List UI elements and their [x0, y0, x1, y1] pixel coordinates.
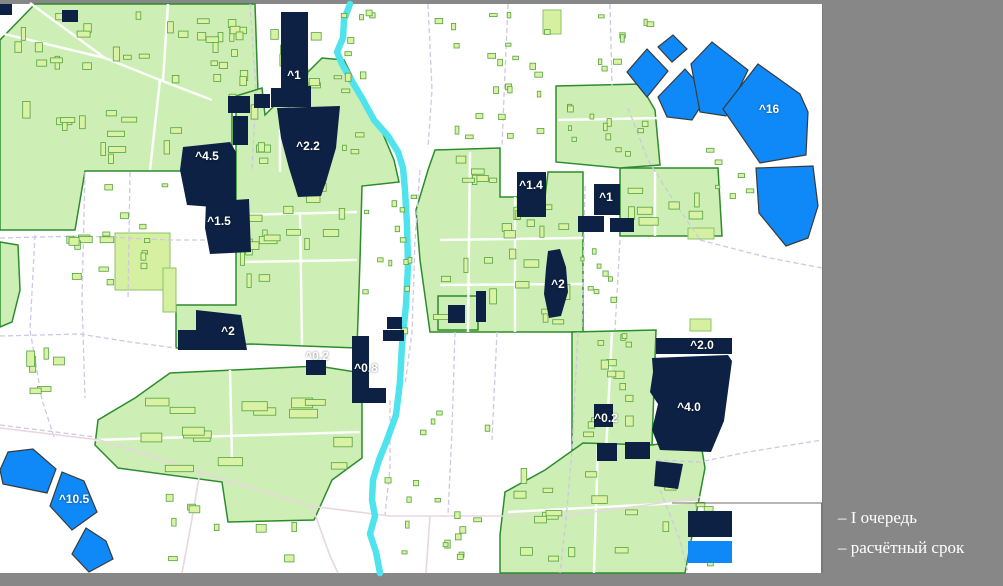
building-footprint	[588, 287, 593, 291]
building-footprint	[602, 66, 607, 71]
building-footprint	[285, 555, 294, 562]
building-footprint	[613, 59, 621, 64]
building-footprint	[527, 220, 535, 227]
building-footprint	[290, 409, 318, 418]
building-footprint	[218, 458, 242, 466]
building-footprint	[264, 235, 280, 241]
building-footprint	[435, 498, 441, 502]
first-phase-area	[0, 4, 12, 15]
building-footprint	[171, 128, 182, 134]
building-footprint	[258, 143, 264, 152]
building-footprint	[309, 79, 319, 86]
building-footprint	[232, 50, 238, 57]
park-area	[163, 268, 176, 312]
building-footprint	[454, 44, 459, 49]
map-capacity-label: ^0.2	[305, 349, 329, 363]
legend-swatch-first-phase	[688, 511, 732, 537]
building-footprint	[639, 218, 658, 226]
building-footprint	[460, 527, 466, 534]
building-footprint	[360, 15, 364, 20]
building-footprint	[182, 427, 204, 435]
building-footprint	[23, 101, 30, 118]
first-phase-area	[476, 291, 486, 322]
building-footprint	[608, 371, 616, 377]
building-footprint	[53, 357, 64, 365]
building-footprint	[474, 518, 482, 522]
building-footprint	[452, 23, 456, 29]
building-footprint	[345, 73, 351, 81]
building-footprint	[456, 156, 466, 163]
building-footprint	[139, 54, 149, 58]
map-document: ^1^2.2^4.5^1.5^1.4^1^2^2^0.2^0.8^2.0^4.0…	[0, 0, 1003, 586]
building-footprint	[214, 524, 219, 530]
building-footprint	[431, 419, 435, 424]
first-phase-area	[254, 94, 270, 108]
park-area	[688, 228, 714, 239]
building-footprint	[594, 290, 599, 294]
building-footprint	[343, 145, 347, 150]
map-capacity-label: ^1.4	[519, 178, 543, 192]
building-footprint	[514, 491, 526, 498]
building-footprint	[637, 207, 652, 214]
first-phase-area	[654, 461, 683, 489]
building-footprint	[103, 232, 110, 236]
building-footprint	[626, 395, 633, 401]
building-footprint	[611, 297, 617, 302]
building-footprint	[569, 547, 575, 556]
building-footprint	[51, 58, 63, 63]
building-footprint	[421, 430, 427, 435]
building-footprint	[400, 238, 406, 243]
building-footprint	[489, 178, 497, 182]
building-footprint	[366, 10, 372, 16]
building-footprint	[214, 74, 221, 81]
building-footprint	[535, 516, 547, 523]
building-footprint	[608, 277, 612, 281]
building-footprint	[506, 43, 511, 46]
building-footprint	[211, 61, 217, 66]
building-footprint	[121, 213, 129, 219]
building-footprint	[141, 433, 162, 442]
building-footprint	[107, 279, 113, 285]
map-capacity-label: ^1.5	[207, 214, 231, 228]
building-footprint	[626, 416, 634, 426]
building-footprint	[669, 202, 679, 209]
building-footprint	[179, 31, 188, 37]
building-footprint	[414, 480, 419, 485]
building-footprint	[99, 267, 108, 271]
building-footprint	[80, 116, 86, 129]
building-footprint	[546, 511, 562, 516]
building-footprint	[109, 154, 114, 163]
building-footprint	[598, 59, 601, 65]
building-footprint	[306, 196, 320, 203]
first-phase-area	[383, 330, 404, 341]
building-footprint	[599, 15, 605, 18]
building-footprint	[476, 114, 483, 119]
building-footprint	[628, 188, 643, 193]
building-footprint	[524, 260, 539, 268]
building-footprint	[540, 226, 544, 237]
building-footprint	[305, 238, 310, 249]
building-footprint	[606, 134, 611, 140]
building-footprint	[141, 253, 146, 260]
building-footprint	[647, 22, 654, 27]
building-footprint	[730, 194, 735, 199]
building-footprint	[553, 320, 564, 324]
building-footprint	[292, 522, 297, 531]
building-footprint	[455, 126, 459, 134]
first-phase-area	[228, 96, 250, 113]
building-footprint	[516, 282, 529, 289]
building-footprint	[219, 62, 227, 68]
building-footprint	[738, 174, 744, 178]
building-footprint	[622, 334, 627, 339]
map-capacity-label: ^10.5	[59, 492, 90, 506]
building-footprint	[363, 290, 368, 294]
building-footprint	[521, 547, 533, 555]
building-footprint	[146, 398, 170, 406]
building-footprint	[389, 260, 392, 266]
building-footprint	[592, 496, 608, 504]
building-footprint	[435, 18, 443, 23]
map-capacity-label: ^0.2	[594, 411, 618, 425]
first-phase-area	[578, 216, 604, 232]
building-footprint	[113, 47, 119, 61]
building-footprint	[456, 534, 462, 540]
park-area	[115, 233, 170, 290]
building-footprint	[508, 86, 512, 93]
building-footprint	[240, 77, 247, 86]
building-footprint	[545, 30, 551, 35]
building-footprint	[69, 238, 79, 246]
building-footprint	[334, 76, 342, 79]
building-footprint	[568, 106, 574, 112]
map-capacity-label: ^2	[551, 277, 565, 291]
building-footprint	[625, 152, 630, 157]
building-footprint	[406, 521, 410, 528]
building-footprint	[124, 55, 132, 59]
building-footprint	[331, 463, 347, 469]
building-footprint	[715, 160, 722, 165]
building-footprint	[590, 114, 594, 119]
building-footprint	[402, 551, 407, 554]
building-footprint	[400, 208, 405, 212]
map-capacity-label: ^1	[287, 68, 301, 82]
building-footprint	[663, 522, 669, 532]
map-capacity-label: ^2.0	[690, 338, 714, 352]
building-footprint	[348, 38, 354, 44]
map-capacity-label: ^4.5	[195, 149, 219, 163]
building-footprint	[100, 237, 114, 243]
building-footprint	[694, 193, 699, 207]
building-footprint	[499, 114, 506, 119]
building-footprint	[271, 30, 279, 40]
first-phase-area	[597, 443, 617, 461]
building-footprint	[584, 432, 594, 437]
building-footprint	[351, 149, 359, 153]
map-capacity-label: ^2	[221, 324, 235, 338]
building-footprint	[504, 231, 515, 238]
first-phase-area	[610, 218, 634, 232]
building-footprint	[166, 494, 173, 501]
building-footprint	[164, 141, 170, 154]
building-footprint	[471, 169, 484, 174]
building-footprint	[168, 22, 174, 33]
building-footprint	[537, 128, 544, 133]
map-capacity-label: ^1	[599, 190, 613, 204]
building-footprint	[341, 14, 347, 18]
building-footprint	[411, 195, 416, 199]
building-footprint	[345, 52, 352, 56]
building-footprint	[83, 63, 92, 70]
legend-item-future-phase: – расчётный срок	[838, 538, 964, 558]
building-footprint	[242, 402, 267, 411]
map-capacity-label: ^0.8	[354, 361, 378, 375]
building-footprint	[378, 258, 384, 262]
first-phase-area	[233, 116, 248, 145]
building-footprint	[620, 384, 626, 390]
building-footprint	[172, 75, 179, 83]
building-footprint	[35, 43, 42, 52]
building-footprint	[240, 251, 244, 265]
legend-item-first-phase: – I очередь	[838, 508, 917, 528]
building-footprint	[638, 129, 644, 133]
building-footprint	[334, 437, 352, 447]
building-footprint	[105, 185, 113, 190]
building-footprint	[287, 229, 301, 235]
building-footprint	[198, 33, 206, 40]
legend-swatch-future-phase	[688, 541, 732, 563]
first-phase-area	[625, 442, 650, 459]
building-footprint	[360, 72, 366, 79]
building-footprint	[405, 286, 410, 291]
building-footprint	[189, 506, 200, 513]
building-footprint	[498, 59, 503, 66]
building-footprint	[535, 72, 543, 77]
building-footprint	[607, 119, 611, 127]
building-footprint	[107, 131, 124, 136]
first-phase-area	[448, 305, 465, 323]
building-footprint	[484, 258, 492, 264]
building-footprint	[256, 524, 266, 532]
building-footprint	[27, 351, 35, 366]
first-phase-area	[62, 10, 78, 22]
map-capacity-label: ^16	[759, 102, 780, 116]
building-footprint	[463, 178, 475, 182]
building-footprint	[509, 249, 515, 259]
building-footprint	[704, 507, 713, 512]
first-phase-area	[387, 317, 402, 329]
building-footprint	[543, 488, 553, 492]
building-footprint	[30, 388, 41, 394]
building-footprint	[488, 53, 496, 58]
building-footprint	[441, 276, 450, 281]
building-footprint	[592, 249, 596, 255]
building-footprint	[392, 201, 397, 207]
building-footprint	[21, 27, 25, 40]
building-footprint	[644, 19, 647, 25]
building-footprint	[408, 257, 412, 263]
building-footprint	[437, 411, 443, 415]
building-footprint	[597, 264, 601, 268]
building-footprint	[172, 518, 176, 526]
building-footprint	[15, 42, 22, 53]
building-footprint	[141, 263, 147, 269]
building-footprint	[259, 275, 270, 282]
building-footprint	[466, 135, 474, 139]
building-footprint	[490, 289, 497, 304]
building-footprint	[101, 143, 106, 156]
building-footprint	[601, 360, 608, 369]
building-footprint	[603, 271, 608, 276]
building-footprint	[626, 342, 631, 347]
building-footprint	[543, 313, 548, 322]
building-footprint	[494, 87, 499, 94]
building-footprint	[549, 556, 559, 561]
building-footprint	[311, 33, 321, 41]
building-footprint	[490, 14, 498, 17]
building-footprint	[342, 89, 350, 93]
building-footprint	[586, 472, 597, 477]
building-footprint	[365, 210, 369, 214]
map-capacity-label: ^2.2	[296, 139, 320, 153]
building-footprint	[323, 230, 338, 237]
building-footprint	[746, 189, 754, 193]
building-footprint	[508, 134, 514, 139]
building-footprint	[559, 224, 569, 230]
building-footprint	[339, 209, 345, 220]
building-footprint	[106, 111, 116, 116]
building-footprint	[122, 117, 137, 122]
building-footprint	[433, 315, 449, 320]
legend-panel: – I очередь – расчётный срок	[835, 0, 1003, 586]
building-footprint	[485, 425, 490, 431]
building-footprint	[247, 274, 251, 288]
building-footprint	[621, 35, 625, 42]
building-footprint	[72, 273, 81, 279]
building-footprint	[206, 37, 219, 43]
building-footprint	[260, 158, 268, 163]
building-footprint	[356, 133, 364, 137]
building-footprint	[455, 512, 460, 519]
building-footprint	[626, 510, 638, 515]
building-footprint	[457, 554, 463, 559]
building-footprint	[715, 185, 719, 188]
building-footprint	[642, 121, 648, 126]
building-footprint	[236, 32, 243, 40]
building-footprint	[502, 224, 511, 232]
building-footprint	[513, 56, 519, 60]
building-footprint	[37, 60, 47, 66]
building-footprint	[572, 137, 576, 141]
building-footprint	[507, 13, 511, 18]
building-footprint	[284, 206, 293, 213]
building-footprint	[170, 407, 195, 413]
building-footprint	[169, 557, 178, 561]
building-footprint	[707, 148, 714, 152]
building-footprint	[604, 123, 608, 131]
building-footprint	[598, 341, 604, 346]
building-footprint	[395, 226, 399, 232]
building-footprint	[197, 19, 209, 24]
building-footprint	[44, 348, 48, 359]
building-footprint	[521, 468, 527, 483]
building-footprint	[165, 465, 193, 471]
building-footprint	[615, 548, 628, 554]
building-footprint	[616, 148, 621, 152]
building-footprint	[162, 184, 168, 187]
building-footprint	[689, 211, 703, 219]
building-footprint	[537, 91, 541, 97]
building-footprint	[140, 224, 146, 229]
building-footprint	[407, 497, 411, 502]
building-footprint	[213, 42, 218, 53]
building-footprint	[530, 63, 536, 69]
building-footprint	[443, 543, 448, 547]
park-area	[690, 319, 711, 331]
building-footprint	[109, 147, 126, 153]
building-footprint	[61, 118, 75, 123]
building-footprint	[77, 31, 90, 37]
building-footprint	[385, 478, 391, 483]
map-capacity-label: ^4.0	[677, 400, 701, 414]
building-footprint	[568, 126, 571, 131]
building-footprint	[136, 12, 141, 19]
building-footprint	[581, 257, 584, 261]
building-footprint	[464, 258, 468, 272]
building-footprint	[305, 399, 325, 405]
building-footprint	[629, 207, 635, 220]
building-footprint	[145, 239, 150, 243]
